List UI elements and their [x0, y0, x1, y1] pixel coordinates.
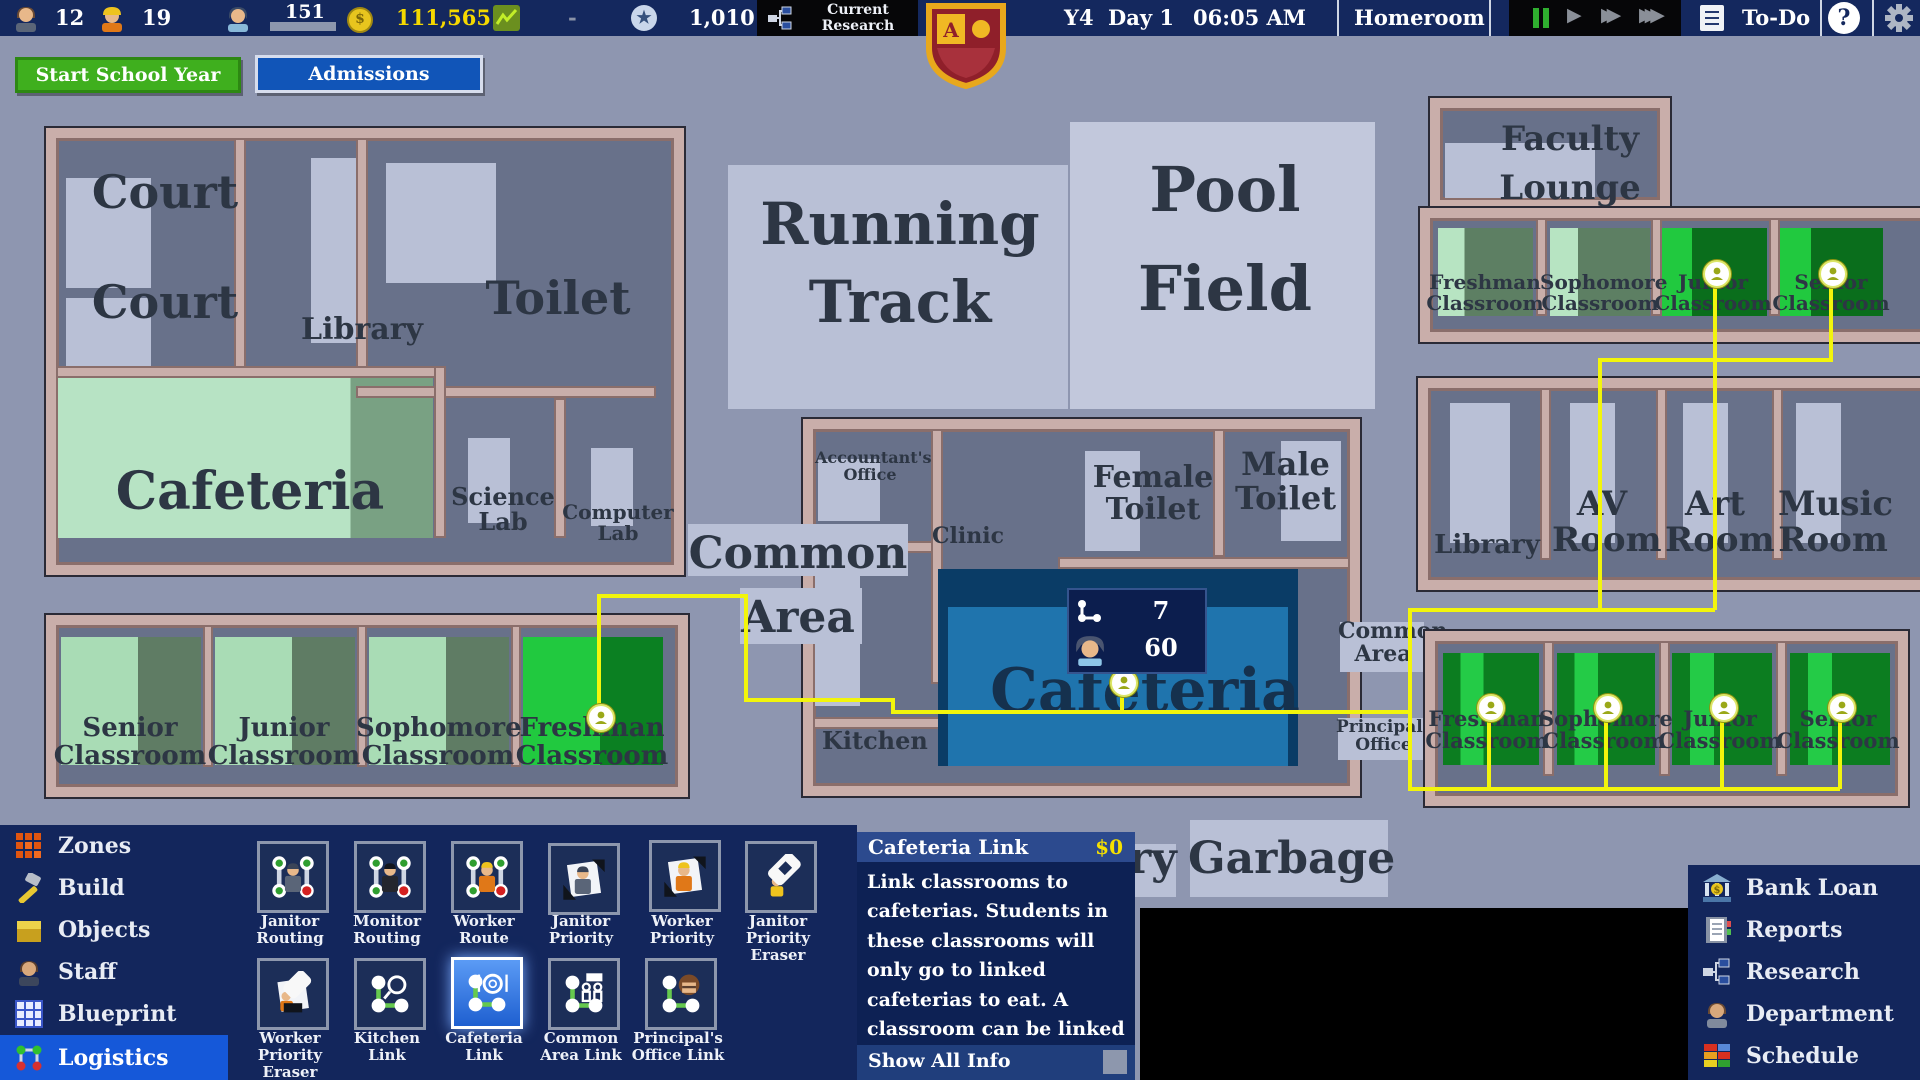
- research-label-line2: Research: [801, 18, 915, 34]
- finance-chart-icon[interactable]: [493, 5, 520, 31]
- tool-janitor-priority[interactable]: [548, 843, 620, 915]
- menu-label: Logistics: [58, 1045, 169, 1071]
- tooltip-body-text: Link classrooms to cafeterias. Students …: [867, 868, 1125, 1074]
- show-all-info-label: Show All Info: [868, 1050, 1011, 1072]
- worker-icon: [98, 4, 126, 32]
- menu-item-blueprint[interactable]: Blueprint: [0, 993, 228, 1035]
- menu-label: Bank Loan: [1746, 875, 1878, 901]
- tool-tooltip: Cafeteria Link $0 Link classrooms to caf…: [857, 832, 1135, 1080]
- svg-text:$: $: [1714, 885, 1721, 896]
- help-button[interactable]: ?: [1828, 2, 1860, 34]
- menu-label: Research: [1746, 959, 1860, 985]
- right-menu: $ Bank Loan Reports Research Department …: [1688, 865, 1920, 1080]
- school-crest: A: [921, 0, 1011, 92]
- tool-label: Worker Route: [436, 913, 532, 947]
- link-count: 7: [1131, 596, 1191, 625]
- fastest-forward-button[interactable]: ▶▶▶: [1639, 4, 1653, 26]
- staff-icon: [12, 957, 46, 987]
- research-tree-icon: [1700, 957, 1734, 987]
- menu-item-build[interactable]: Build: [0, 867, 228, 909]
- tool-label: Common Area Link: [533, 1030, 629, 1064]
- tooltip-title: Cafeteria Link: [868, 835, 1028, 859]
- menu-item-reports[interactable]: Reports: [1688, 909, 1920, 951]
- tool-common-area-link[interactable]: [548, 958, 620, 1030]
- menu-label: Build: [58, 875, 125, 901]
- settings-gear-icon[interactable]: [1884, 3, 1914, 33]
- menu-label: Zones: [58, 833, 131, 859]
- tool-label: Worker Priority Eraser: [242, 1030, 338, 1080]
- student-capacity-bar: [270, 22, 336, 31]
- tool-label: Worker Priority: [634, 913, 730, 947]
- menu-item-zones[interactable]: Zones: [0, 825, 228, 867]
- menu-label: Objects: [58, 917, 150, 943]
- playback-controls: ▶ ▶▶ ▶▶▶: [1509, 0, 1681, 36]
- prestige-icon: ★: [631, 5, 657, 31]
- build-hammer-icon: [12, 873, 46, 903]
- menu-label: Department: [1746, 1001, 1894, 1027]
- balance-delta: -: [568, 5, 577, 30]
- link-node[interactable]: [1594, 694, 1622, 722]
- tool-label: Cafeteria Link: [436, 1030, 532, 1064]
- worker-count: 19: [142, 5, 171, 30]
- menu-item-bank-loan[interactable]: $ Bank Loan: [1688, 867, 1920, 909]
- link-node[interactable]: [1477, 694, 1505, 722]
- link-node[interactable]: [1819, 260, 1847, 288]
- link-node[interactable]: [1703, 260, 1731, 288]
- teacher-count: 12: [55, 5, 84, 30]
- menu-item-logistics[interactable]: Logistics: [0, 1035, 228, 1080]
- period-label: Homeroom: [1354, 5, 1474, 30]
- research-label-line1: Current: [801, 2, 915, 18]
- tool-janitor-routing[interactable]: [257, 841, 329, 913]
- menu-item-research[interactable]: Research: [1688, 951, 1920, 993]
- show-all-info-checkbox[interactable]: [1103, 1050, 1127, 1074]
- menu-label: Staff: [58, 959, 116, 985]
- tool-cafeteria-link[interactable]: [451, 957, 523, 1029]
- tool-label: Monitor Routing: [339, 913, 435, 947]
- student-count-icon: [1074, 634, 1106, 666]
- menu-label: Schedule: [1746, 1043, 1859, 1069]
- tool-kitchen-link[interactable]: [354, 958, 426, 1030]
- menu-item-schedule[interactable]: Schedule: [1688, 1035, 1920, 1077]
- department-icon: [1700, 999, 1734, 1029]
- menu-item-staff[interactable]: Staff: [0, 951, 228, 993]
- fast-forward-button[interactable]: ▶▶: [1601, 4, 1612, 26]
- todo-label[interactable]: To-Do: [1742, 5, 1810, 30]
- tool-worker-priority-eraser[interactable]: [257, 958, 329, 1030]
- tool-label: Janitor Priority: [533, 913, 629, 947]
- link-node[interactable]: [587, 704, 615, 732]
- tool-label: Janitor Priority Eraser: [730, 913, 826, 963]
- tool-janitor-priority-eraser[interactable]: [745, 841, 817, 913]
- link-node[interactable]: [1710, 694, 1738, 722]
- day-label: Day 1: [1108, 5, 1174, 30]
- year-label: Y4: [1064, 5, 1094, 30]
- todo-icon[interactable]: [1700, 5, 1724, 31]
- play-button[interactable]: ▶: [1567, 4, 1582, 26]
- prestige-count: 1,010: [689, 5, 755, 30]
- link-node[interactable]: [1828, 694, 1856, 722]
- student-icon: [224, 4, 252, 32]
- tool-label: Kitchen Link: [339, 1030, 435, 1064]
- void-area: [1140, 908, 1688, 1080]
- menu-label: Blueprint: [58, 1001, 176, 1027]
- tool-worker-route[interactable]: [451, 841, 523, 913]
- menu-label: Reports: [1746, 917, 1842, 943]
- left-menu: Zones Build Objects Staff Blueprint Logi…: [0, 825, 228, 1080]
- bank-icon: $: [1700, 873, 1734, 903]
- tool-principals-office-link[interactable]: [645, 958, 717, 1030]
- menu-item-objects[interactable]: Objects: [0, 909, 228, 951]
- objects-icon: [12, 915, 46, 945]
- reports-icon: [1700, 915, 1734, 945]
- student-count: 60: [1131, 633, 1191, 662]
- current-research-section[interactable]: Current Research: [757, 0, 918, 36]
- blueprint-icon: [12, 999, 46, 1029]
- admissions-button[interactable]: Admissions: [255, 55, 483, 93]
- logistics-icon: [12, 1043, 46, 1073]
- tool-worker-priority[interactable]: [649, 840, 721, 912]
- menu-item-department[interactable]: Department: [1688, 993, 1920, 1035]
- time-label: 06:05 AM: [1193, 5, 1306, 30]
- money-icon: $: [347, 7, 373, 33]
- pause-button[interactable]: [1533, 8, 1549, 28]
- svg-text:A: A: [942, 18, 959, 42]
- tool-label: Janitor Routing: [242, 913, 338, 947]
- teacher-icon: [12, 4, 40, 32]
- cafeteria-info-panel: 7 60: [1067, 588, 1207, 674]
- logistics-toolbar: Janitor Routing Monitor Routing Worker R…: [228, 825, 857, 1080]
- schedule-icon: [1700, 1041, 1734, 1071]
- start-school-year-button[interactable]: Start School Year: [15, 57, 241, 93]
- tool-monitor-routing[interactable]: [354, 841, 426, 913]
- game-screen: Court Court Library Toilet Cafeteria Sci…: [0, 0, 1920, 1080]
- money-amount: 111,565: [396, 5, 491, 30]
- tool-label: Principal's Office Link: [630, 1030, 726, 1064]
- zones-icon: [12, 831, 46, 861]
- research-icon: [767, 5, 793, 31]
- tooltip-cost: $0: [1095, 835, 1123, 859]
- link-count-icon: [1077, 599, 1103, 623]
- student-count: 151: [285, 1, 325, 23]
